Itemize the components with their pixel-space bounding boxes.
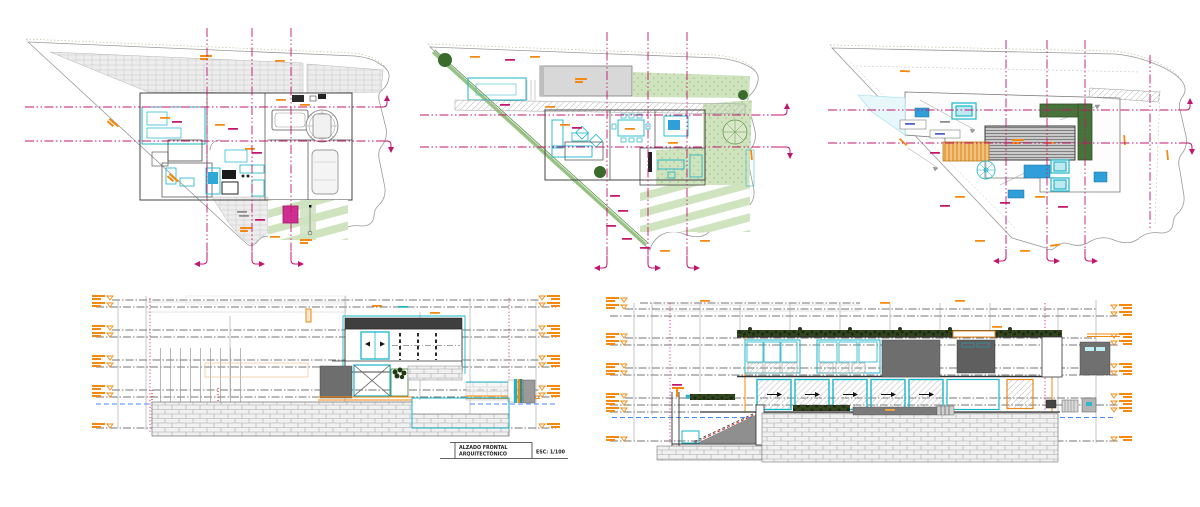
elevA-annotations [372,305,440,314]
plan-level-2 [420,32,793,271]
grid-arrow-icon [778,147,793,159]
roof-slab [540,66,632,96]
elevation-section [606,297,1132,462]
site-equipment [1046,398,1096,412]
grid-arrow-icon [194,252,207,267]
title-block: ALZADO FRONTAL ARQUITECTÓNICO ESC: 1/100 [440,443,568,459]
grid-arrow-icon [648,256,661,271]
building-section [700,327,1120,412]
grid-arrow-icon [594,256,607,271]
grid-arrow-icon [775,103,790,115]
plan-level-1 [25,28,394,267]
striped-paving [640,185,750,232]
base-wall [152,398,509,436]
architectural-drawing-sheet: ALZADO FRONTAL ARQUITECTÓNICO ESC: 1/100 [0,0,1200,507]
base-wall [657,405,1058,462]
elevation-front: ALZADO FRONTAL ARQUITECTÓNICO ESC: 1/100 [92,295,568,459]
tree [594,166,606,178]
grid-arrow-icon [993,249,1006,264]
grid-arrow-icon [1047,249,1060,264]
tree-canopy [723,120,747,144]
tree [438,53,452,67]
louver-deck [943,142,989,161]
green-roof [737,330,1062,337]
chimney [306,309,311,322]
drawing-canvas: ALZADO FRONTAL ARQUITECTÓNICO ESC: 1/100 [0,0,1200,507]
magenta-feature [283,206,298,223]
garden-strips [268,200,348,240]
drawing-title-line2: ARQUITECTÓNICO [459,451,507,458]
tree [738,90,748,100]
parked-car [312,150,338,194]
drawing-title-line1: ALZADO FRONTAL [459,445,507,451]
ramp-pit [672,387,764,446]
roof-fan [977,161,995,179]
grid-arrow-icon [291,252,304,267]
grid-arrow-icon [687,256,700,271]
planter-box [391,368,408,397]
grid-arrow-icon [252,252,265,267]
driveway-ramp [698,415,756,443]
grid-arrow-icon [1085,249,1098,264]
drawing-scale: ESC: 1/100 [536,450,566,456]
plan-roof [828,40,1195,264]
fence-posts [155,348,243,402]
